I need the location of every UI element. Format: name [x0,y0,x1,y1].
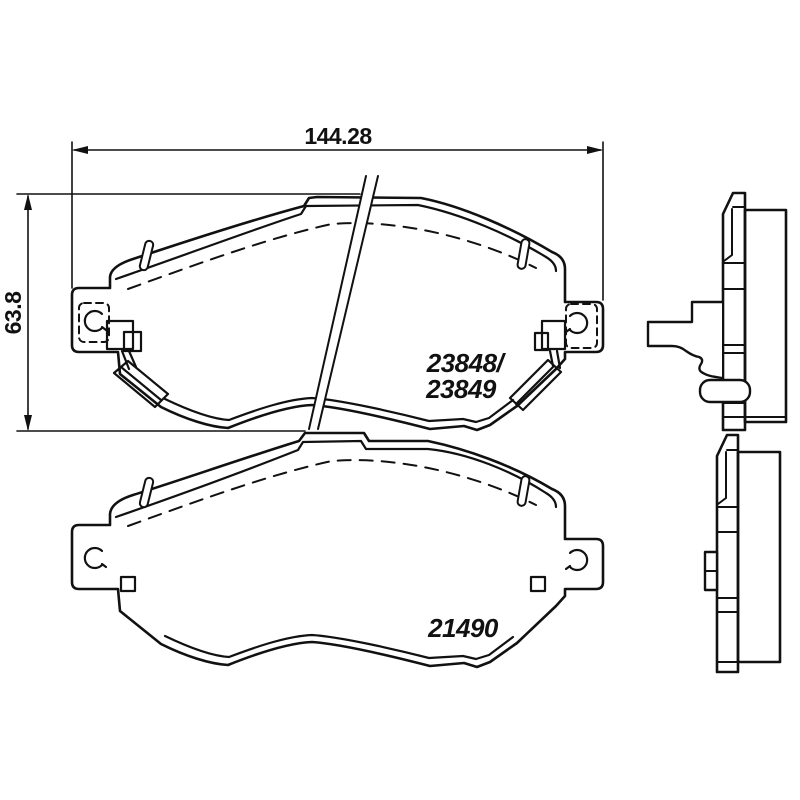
divider-slash [309,176,378,429]
friction-block [738,452,780,662]
retaining-clip [648,302,722,378]
shim-outline-left [79,303,109,342]
wear-sensor-left [107,321,141,369]
guide-pin-right [517,239,530,270]
drawing-canvas: 144.28 63.8 [0,0,800,800]
clip-foot [700,380,750,402]
plate-detail-lines [717,450,738,662]
circlip-hole-right [566,550,587,570]
part-number-bottom-pad: 21490 [427,613,499,643]
arrow-up-icon [24,194,32,210]
technical-drawing: 144.28 63.8 [0,0,800,800]
sensor-hole-right [531,577,545,591]
hidden-line-top [128,223,536,289]
part-number-top-pad-line2: 23849 [425,374,497,404]
abutment-plate-right [510,360,561,410]
width-dimension-label: 144.28 [304,123,372,149]
arrow-right-icon [587,146,603,154]
abutment-plate-left [114,361,168,407]
arrow-left-icon [72,146,88,154]
height-dimension-label: 63.8 [0,291,26,334]
pad-outline [72,433,603,667]
circlip-hole-left [85,548,106,568]
brake-pad-side-view-bottom [705,435,780,672]
sensor-hole-left [121,577,135,591]
backing-plate [717,435,738,672]
guide-pin-right [517,476,530,507]
brake-pad-front-view-bottom [72,433,603,667]
arrow-down-icon [24,415,32,431]
shim-outline-right [566,304,597,348]
width-dimension: 144.28 [72,123,603,300]
circlip-hole-left [85,311,106,331]
hidden-line-top [128,460,536,526]
brake-pad-side-view-top [648,193,786,430]
circlip-hole-right [566,313,587,333]
